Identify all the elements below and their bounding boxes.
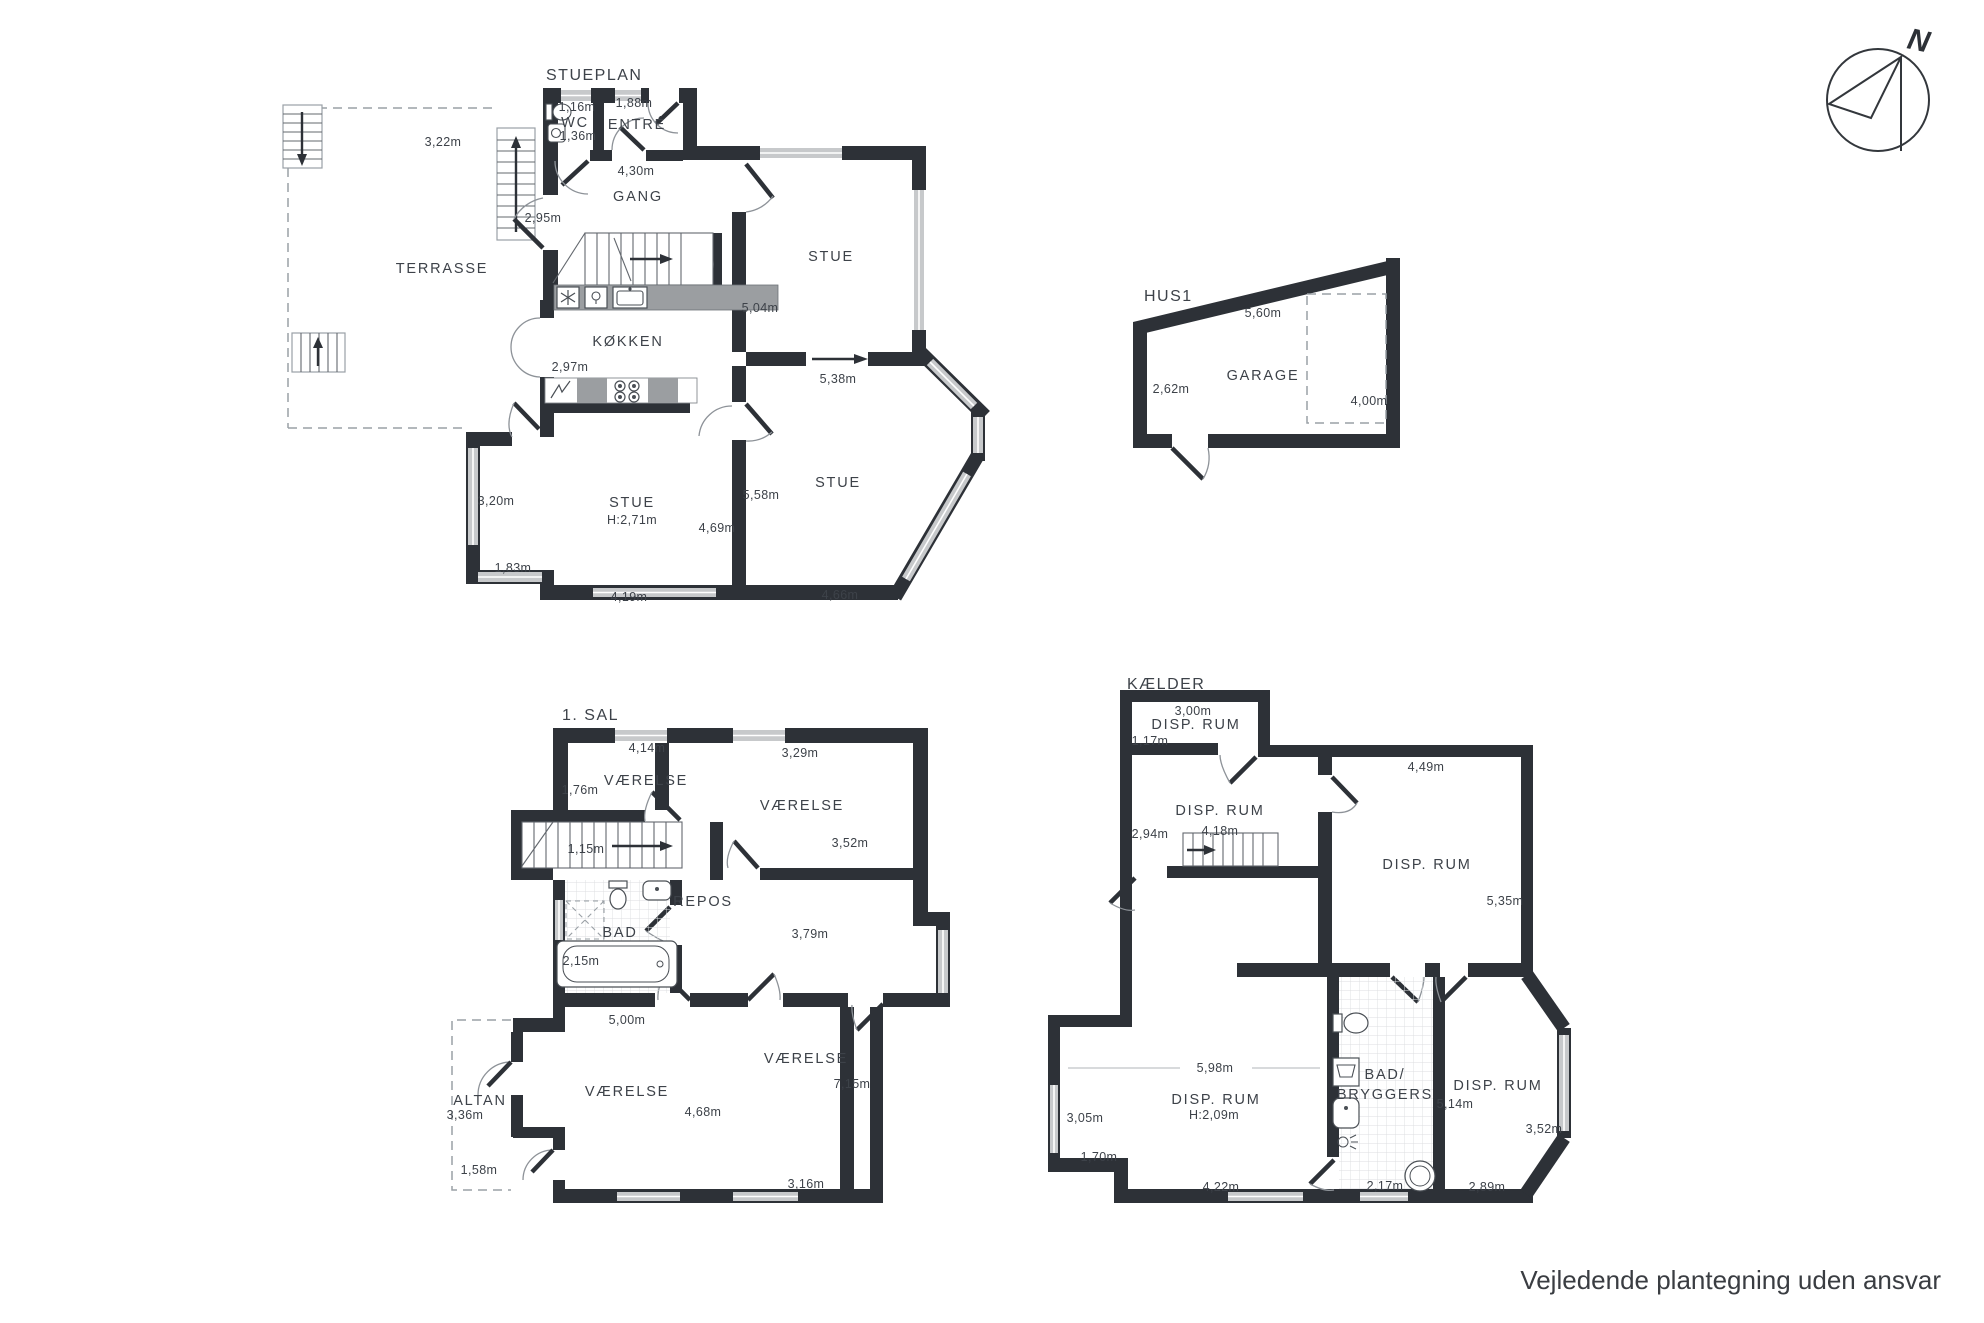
room-label-repos: REPOS xyxy=(673,894,733,910)
dim-stairs: 4,18m xyxy=(1202,824,1239,838)
terrasse-stairs xyxy=(283,105,535,372)
dim-tr-width: 3,29m xyxy=(782,746,819,760)
dim-bl-window: 3,05m xyxy=(1067,1111,1104,1125)
stueplan-labels: STUEPLAN TERRASSE WC ENTRÉ GANG KØKKEN S… xyxy=(396,67,861,604)
kaelder-bath xyxy=(1333,977,1435,1191)
dim-stairs: 1,15m xyxy=(568,842,605,856)
dim-right-depth: 5,35m xyxy=(1487,894,1524,908)
room-label-terrasse: TERRASSE xyxy=(396,261,489,277)
room-label-vaerelse-tl: VÆRELSE xyxy=(604,773,688,789)
laundry-sink-icon xyxy=(1333,1058,1359,1086)
dim-altan-side: 1,58m xyxy=(461,1163,498,1177)
room-label-bad-line2: BRYGGERS xyxy=(1337,1087,1433,1103)
stueplan-stairs xyxy=(553,233,713,285)
floorplan-canvas: STUEPLAN TERRASSE WC ENTRÉ GANG KØKKEN S… xyxy=(0,0,1984,1323)
dim-bad-width: 2,17m xyxy=(1367,1179,1404,1193)
dim-garage-top: 5,60m xyxy=(1245,306,1282,320)
floor-title-stueplan: STUEPLAN xyxy=(546,67,642,84)
dim-br-width: 3,16m xyxy=(788,1177,825,1191)
dim-tl-width: 4,14m xyxy=(629,741,666,755)
toilet-icon xyxy=(609,881,627,888)
room-label-bad: BAD xyxy=(602,925,637,941)
dim-kokken-side: 2,97m xyxy=(552,360,589,374)
room-label-vaerelse-br: VÆRELSE xyxy=(764,1051,848,1067)
dim-stue-br-width: 4,66m xyxy=(822,588,859,602)
compass-circle xyxy=(1827,49,1929,151)
kaelder-walls xyxy=(1048,690,1571,1203)
room-label-bad-line1: BAD/ xyxy=(1364,1067,1405,1083)
dim-br-window: 3,52m xyxy=(1526,1122,1563,1136)
dim-stue-tr-depth: 5,04m xyxy=(742,301,779,315)
dim-bl-width: 5,00m xyxy=(609,1013,646,1027)
room-label-stue-br: STUE xyxy=(815,475,861,491)
floor-plan-kaelder: KÆLDER DISP. RUM DISP. RUM DISP. RUM DIS… xyxy=(1048,676,1571,1203)
room-label-disp-br: DISP. RUM xyxy=(1453,1078,1542,1094)
compass: N xyxy=(1827,23,1934,151)
footer-disclaimer: Vejledende plantegning uden ansvar xyxy=(1520,1265,1941,1295)
dim-garage-left: 2,62m xyxy=(1153,382,1190,396)
dim-br-width: 2,89m xyxy=(1469,1180,1506,1194)
floorplan-page: STUEPLAN TERRASSE WC ENTRÉ GANG KØKKEN S… xyxy=(0,0,1984,1323)
dim-disp-bl-height: H:2,09m xyxy=(1189,1108,1239,1122)
dim-stue-bl-height: H:2,71m xyxy=(607,513,657,527)
room-label-stue-bl: STUE xyxy=(609,495,655,511)
dim-br-depth: 7,15m xyxy=(834,1077,871,1091)
dishwasher-icon xyxy=(585,287,607,308)
dim-stue-bl-width: 4,19m xyxy=(611,590,648,604)
room-label-disp-mid: DISP. RUM xyxy=(1175,803,1264,819)
room-label-altan: ALTAN xyxy=(453,1093,507,1109)
floor-title-1sal: 1. SAL xyxy=(562,707,619,724)
dim-tl-width: 3,00m xyxy=(1175,704,1212,718)
dim-stue-bl-depth: 4,69m xyxy=(699,521,736,535)
floor-plan-stueplan: STUEPLAN TERRASSE WC ENTRÉ GANG KØKKEN S… xyxy=(283,67,985,604)
dim-mid-depth: 3,79m xyxy=(792,927,829,941)
dim-terrasse-width: 3,22m xyxy=(425,135,462,149)
dim-stue-bl-window: 3,20m xyxy=(478,494,515,508)
room-label-stue-tr: STUE xyxy=(808,249,854,265)
floor-plan-garage: HUS1 GARAGE 5,60m 2,62m 4,00m xyxy=(1133,258,1400,479)
dim-bl-depth: 4,68m xyxy=(685,1105,722,1119)
dim-tl-side: 1,76m xyxy=(562,783,599,797)
dim-tl-side: 1,17m xyxy=(1132,734,1169,748)
room-label-vaerelse-tr: VÆRELSE xyxy=(760,798,844,814)
dim-bl-width: 5,98m xyxy=(1197,1061,1234,1075)
room-label-entre: ENTRÉ xyxy=(608,116,666,133)
room-label-disp-bl: DISP. RUM xyxy=(1171,1092,1260,1108)
dim-gang-side: 2,95m xyxy=(525,211,562,225)
dim-gang-width: 4,30m xyxy=(618,164,655,178)
room-label-garage: GARAGE xyxy=(1227,368,1300,384)
room-label-vaerelse-bl: VÆRELSE xyxy=(585,1084,669,1100)
garage-walls xyxy=(1133,258,1400,448)
compass-north-label: N xyxy=(1905,23,1934,60)
dim-stue-br-depth: 5,58m xyxy=(743,488,780,502)
garage-labels: HUS1 GARAGE 5,60m 2,62m 4,00m xyxy=(1144,288,1387,408)
room-label-disp-right: DISP. RUM xyxy=(1382,857,1471,873)
floor-title-kaelder: KÆLDER xyxy=(1127,676,1205,693)
floor-plan-1sal: 1. SAL VÆRELSE VÆRELSE VÆRELSE VÆRELSE B… xyxy=(447,707,950,1203)
toilet-icon xyxy=(1333,1014,1342,1032)
dim-bad-width: 2,15m xyxy=(563,954,600,968)
room-label-kokken: KØKKEN xyxy=(592,334,663,350)
toilet-icon xyxy=(546,104,552,120)
dim-bl-window2: 1,70m xyxy=(1081,1150,1118,1164)
dim-entre-width: 1,88m xyxy=(616,96,653,110)
dim-mid-side: 2,94m xyxy=(1132,827,1169,841)
floor-title-hus1: HUS1 xyxy=(1144,288,1193,305)
dim-stue-bl-window2: 1,83m xyxy=(495,561,532,575)
dim-wc-depth: 1,36m xyxy=(560,129,597,143)
dim-tr-depth: 3,52m xyxy=(832,836,869,850)
room-label-gang: GANG xyxy=(613,189,663,205)
dim-garage-right: 4,00m xyxy=(1351,394,1388,408)
dim-altan-width: 3,36m xyxy=(447,1108,484,1122)
dim-br-depth: 5,14m xyxy=(1437,1097,1474,1111)
dim-stue-tr-width: 5,38m xyxy=(820,372,857,386)
garage-door-area xyxy=(1172,294,1386,479)
dim-bl-width2: 4,22m xyxy=(1203,1180,1240,1194)
dim-wc-width: 1,16m xyxy=(559,100,596,114)
room-label-disp-tl: DISP. RUM xyxy=(1151,717,1240,733)
dim-right-width: 4,49m xyxy=(1408,760,1445,774)
